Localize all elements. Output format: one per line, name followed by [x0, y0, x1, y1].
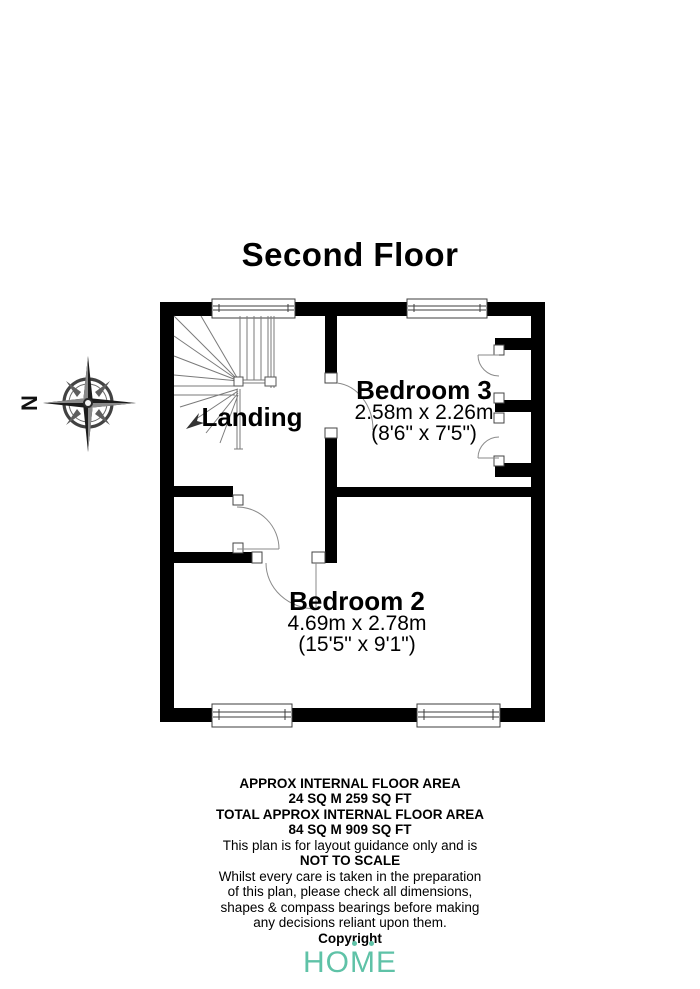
logo-letter-e: E [376, 946, 397, 980]
stair-newel-left [234, 377, 243, 386]
logo-dot-icon [352, 941, 357, 946]
disclaimer-line-2: of this plan, please check all dimension… [0, 884, 700, 899]
room-name-bedroom2: Bedroom 2 [288, 590, 427, 613]
jamb-closet1-top [494, 345, 504, 355]
room-dim-imperial-bedroom3: (8'6" x 7'5") [355, 423, 494, 444]
wall-cupboard-top [174, 486, 233, 497]
wall-outer-right [531, 302, 545, 722]
page-title: Second Floor [0, 236, 700, 274]
jamb-bed2-door-right [312, 552, 325, 563]
jamb-cupboard-door-top [233, 495, 243, 505]
wall-landing-bed3-upper [325, 316, 337, 373]
not-to-scale-line: NOT TO SCALE [0, 853, 700, 868]
wall-bed2-top-left [174, 552, 253, 563]
room-block-bedroom3: Bedroom 3 2.58m x 2.26m (8'6" x 7'5") [355, 379, 494, 444]
guidance-line: This plan is for layout guidance only an… [0, 838, 700, 853]
jamb-bed3-door-top [325, 373, 337, 383]
room-label-landing: Landing [201, 402, 302, 433]
footer-disclaimer-block: APPROX INTERNAL FLOOR AREA 24 SQ M 259 S… [0, 776, 700, 946]
room-dim-imperial-bedroom2: (15'5" x 9'1") [288, 634, 427, 655]
disclaimer-line-3: shapes & compass bearings before making [0, 900, 700, 915]
home-logo: HOME [0, 946, 700, 980]
room-block-bedroom2: Bedroom 2 4.69m x 2.78m (15'5" x 9'1") [288, 590, 427, 655]
jamb-closet1-bottom [494, 393, 504, 403]
jamb-closet2-top [494, 413, 504, 423]
logo-letter-h: H [303, 946, 326, 980]
room-name-bedroom3: Bedroom 3 [355, 379, 494, 402]
wall-outer-left [160, 302, 174, 722]
logo-dot-icon [369, 941, 374, 946]
approx-area-value: 24 SQ M 259 SQ FT [0, 791, 700, 806]
window-top-left [212, 299, 295, 318]
floorplan-page: N [0, 0, 700, 989]
window-top-right [407, 299, 487, 318]
jamb-bed3-door-bottom [325, 428, 337, 438]
copyright-line: Copyright [0, 931, 700, 946]
compass-rose: N [17, 356, 136, 452]
logo-letter-o: O [326, 946, 350, 980]
stair-newel-right [265, 377, 276, 386]
jamb-cupboard-door-bottom [233, 543, 243, 553]
total-area-label: TOTAL APPROX INTERNAL FLOOR AREA [0, 807, 700, 822]
room-dim-metric-bedroom2: 4.69m x 2.78m [288, 613, 427, 634]
room-dim-metric-bedroom3: 2.58m x 2.26m [355, 402, 494, 423]
windows [212, 299, 500, 727]
jamb-bed2-door-left [252, 552, 262, 563]
door-closet1-arc [478, 355, 499, 376]
total-area-value: 84 SQ M 909 SQ FT [0, 822, 700, 837]
approx-area-label: APPROX INTERNAL FLOOR AREA [0, 776, 700, 791]
window-bottom-left [212, 704, 292, 727]
logo-letter-m: M [350, 946, 376, 980]
window-bottom-right [417, 704, 500, 727]
compass-north-label: N [17, 395, 42, 411]
compass-hub-center [85, 400, 91, 406]
wall-bed2-bed3-divider [325, 487, 545, 497]
disclaimer-line-1: Whilst every care is taken in the prepar… [0, 869, 700, 884]
disclaimer-line-4: any decisions reliant upon them. [0, 915, 700, 930]
wall-landing-bed2-vertical [325, 497, 337, 563]
logo-letter-m-glyph: M [350, 946, 376, 980]
stair-winder-upper [174, 316, 239, 395]
walls [160, 302, 545, 722]
